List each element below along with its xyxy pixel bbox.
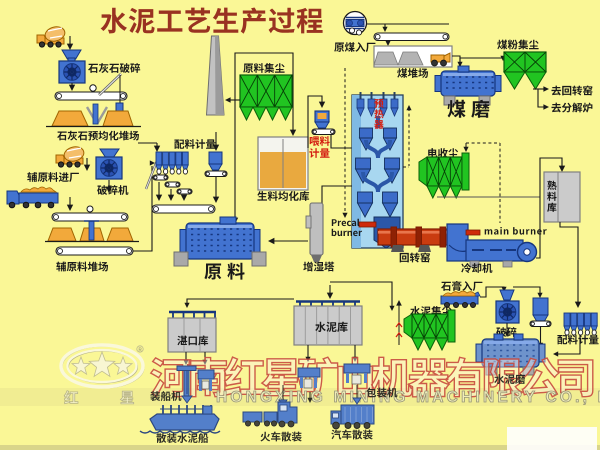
- svg-text:HONGXING MINING MACHINERY CO.,: HONGXING MINING MACHINERY CO., LTD: [216, 389, 600, 406]
